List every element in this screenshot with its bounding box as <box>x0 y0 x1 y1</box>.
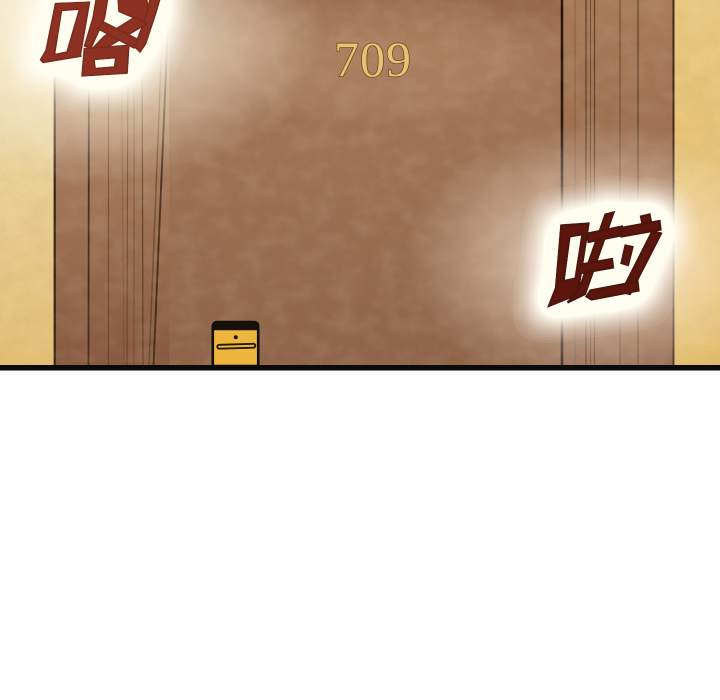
svg-text:709: 709 <box>334 31 412 87</box>
